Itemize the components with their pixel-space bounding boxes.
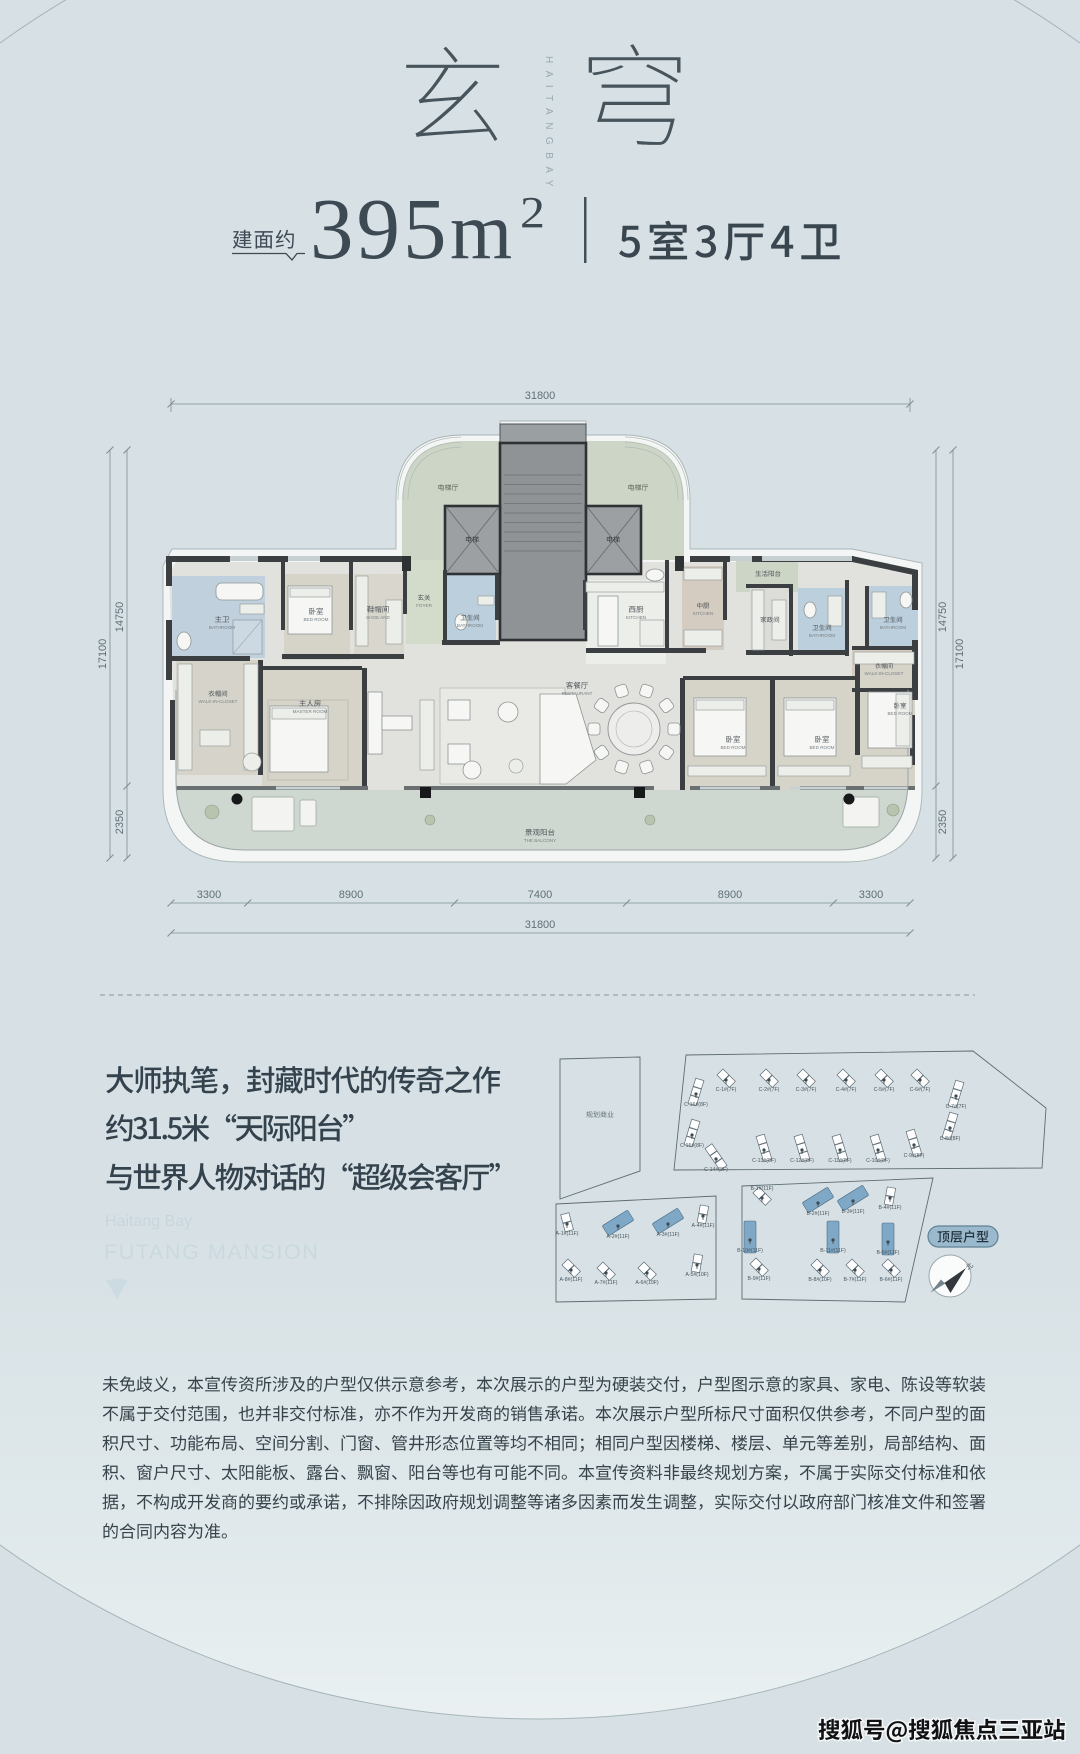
svg-text:395: 395 xyxy=(310,180,450,277)
svg-text:B-2#(11F): B-2#(11F) xyxy=(807,1211,830,1217)
svg-text:BED ROOM: BED ROOM xyxy=(720,745,745,750)
svg-text:WALK-IN-CLOSET: WALK-IN-CLOSET xyxy=(199,699,238,704)
svg-text:C-15#(8F): C-15#(8F) xyxy=(680,1143,704,1149)
svg-text:8900: 8900 xyxy=(718,889,742,901)
svg-text:THE BALCONY: THE BALCONY xyxy=(524,838,556,843)
svg-text:3300: 3300 xyxy=(197,889,221,901)
svg-text:A-8#(11F): A-8#(11F) xyxy=(560,1277,583,1283)
svg-text:2: 2 xyxy=(520,188,545,237)
svg-text:A-4#(11F): A-4#(11F) xyxy=(692,1223,715,1229)
svg-text:7400: 7400 xyxy=(528,889,552,901)
svg-text:BED ROOM: BED ROOM xyxy=(887,711,912,716)
svg-text:HAITANGBAY: HAITANGBAY xyxy=(543,56,554,194)
svg-text:31800: 31800 xyxy=(525,919,556,931)
svg-text:B-1#(11F): B-1#(11F) xyxy=(751,1186,774,1192)
svg-text:C-6#(7F): C-6#(7F) xyxy=(910,1087,931,1093)
svg-text:KITCHEN: KITCHEN xyxy=(626,615,646,620)
svg-text:A-2#(11F): A-2#(11F) xyxy=(607,1234,630,1240)
svg-text:RESTAURANT: RESTAURANT xyxy=(562,691,593,696)
svg-text:14750: 14750 xyxy=(937,602,949,633)
svg-text:14750: 14750 xyxy=(114,602,126,633)
svg-text:2350: 2350 xyxy=(114,810,126,834)
svg-text:8900: 8900 xyxy=(339,889,363,901)
svg-text:C-1#(7F): C-1#(7F) xyxy=(716,1087,737,1093)
svg-text:C-2#(7F): C-2#(7F) xyxy=(759,1087,780,1093)
svg-text:MASTER ROOM: MASTER ROOM xyxy=(293,709,328,714)
svg-text:B-3#(11F): B-3#(11F) xyxy=(842,1209,865,1215)
svg-text:C-10#(8F): C-10#(8F) xyxy=(866,1158,890,1164)
svg-text:B-6#(11F): B-6#(11F) xyxy=(880,1277,903,1283)
svg-text:FUTANG MANSION: FUTANG MANSION xyxy=(104,1240,320,1264)
svg-text:BED ROOM: BED ROOM xyxy=(303,617,328,622)
svg-text:C-11#(8F): C-11#(8F) xyxy=(828,1158,852,1164)
svg-text:BATHROOM: BATHROOM xyxy=(209,625,235,630)
svg-text:A-1#(11F): A-1#(11F) xyxy=(556,1231,579,1237)
svg-text:SHOE AND: SHOE AND xyxy=(366,615,390,620)
svg-text:BATHROOM: BATHROOM xyxy=(457,623,483,628)
svg-text:3300: 3300 xyxy=(859,889,883,901)
svg-text:BED ROOM: BED ROOM xyxy=(809,745,834,750)
svg-text:C-5#(7F): C-5#(7F) xyxy=(874,1087,895,1093)
svg-text:A-6#(10F): A-6#(10F) xyxy=(635,1280,659,1286)
svg-text:C-8#(8F): C-8#(8F) xyxy=(940,1136,961,1142)
svg-text:BATHROOM: BATHROOM xyxy=(809,633,835,638)
svg-text:C-9#(8F): C-9#(8F) xyxy=(904,1153,925,1159)
svg-text:B-4#(11F): B-4#(11F) xyxy=(879,1205,902,1211)
svg-text:2350: 2350 xyxy=(937,810,949,834)
svg-text:FOYER: FOYER xyxy=(416,603,433,608)
svg-text:B-8#(10F): B-8#(10F) xyxy=(808,1277,832,1283)
svg-text:C-14#(8F): C-14#(8F) xyxy=(704,1167,728,1173)
svg-text:C-4#(7F): C-4#(7F) xyxy=(836,1087,857,1093)
svg-text:BATHROOM: BATHROOM xyxy=(880,625,906,630)
svg-text:C-12#(8F): C-12#(8F) xyxy=(790,1158,814,1164)
svg-text:A-7#(11F): A-7#(11F) xyxy=(595,1280,618,1286)
svg-text:B-5#(11F): B-5#(11F) xyxy=(877,1250,900,1256)
svg-text:A-5#(10F): A-5#(10F) xyxy=(685,1272,709,1278)
svg-text:31800: 31800 xyxy=(525,390,556,402)
svg-text:C-7#(7F): C-7#(7F) xyxy=(946,1104,967,1110)
svg-text:WALK-IN-CLOSET: WALK-IN-CLOSET xyxy=(865,671,904,676)
svg-text:17100: 17100 xyxy=(97,639,109,670)
svg-text:A-3#(11F): A-3#(11F) xyxy=(657,1232,680,1238)
svg-text:B-11#(11F): B-11#(11F) xyxy=(820,1248,846,1254)
svg-text:C-16#(8F): C-16#(8F) xyxy=(684,1102,708,1108)
svg-text:C-3#(7F): C-3#(7F) xyxy=(796,1087,817,1093)
svg-text:KITCHEN: KITCHEN xyxy=(693,611,713,616)
svg-text:C-13#(8F): C-13#(8F) xyxy=(752,1158,776,1164)
svg-text:B-10#(11F): B-10#(11F) xyxy=(737,1248,763,1254)
svg-text:Haitang Bay: Haitang Bay xyxy=(105,1213,192,1230)
svg-text:m: m xyxy=(450,188,512,276)
svg-text:17100: 17100 xyxy=(954,639,966,670)
svg-text:B-7#(11F): B-7#(11F) xyxy=(844,1277,867,1283)
svg-text:B-9#(11F): B-9#(11F) xyxy=(748,1276,771,1282)
